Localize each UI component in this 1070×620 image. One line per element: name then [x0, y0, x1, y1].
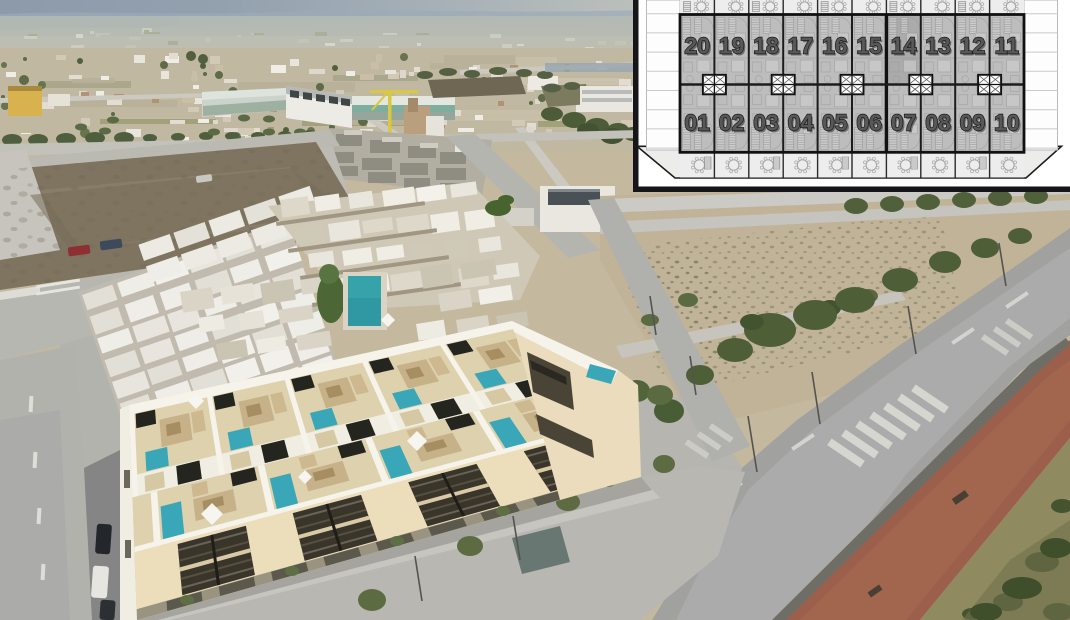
svg-text:07: 07: [891, 110, 917, 136]
svg-text:09: 09: [960, 110, 986, 136]
svg-text:19: 19: [719, 33, 745, 59]
svg-text:17: 17: [788, 33, 814, 59]
svg-text:16: 16: [822, 33, 848, 59]
svg-text:03: 03: [753, 110, 779, 136]
svg-text:02: 02: [719, 110, 745, 136]
svg-text:08: 08: [925, 110, 951, 136]
svg-text:12: 12: [960, 33, 986, 59]
svg-text:11: 11: [995, 33, 1020, 59]
svg-text:15: 15: [856, 33, 882, 59]
svg-text:06: 06: [856, 110, 882, 136]
svg-text:05: 05: [822, 110, 848, 136]
svg-text:10: 10: [994, 110, 1020, 136]
svg-text:18: 18: [753, 33, 779, 59]
svg-text:14: 14: [891, 33, 917, 59]
svg-text:04: 04: [788, 110, 814, 136]
svg-text:20: 20: [684, 33, 710, 59]
svg-text:01: 01: [684, 110, 710, 136]
svg-text:13: 13: [925, 33, 951, 59]
